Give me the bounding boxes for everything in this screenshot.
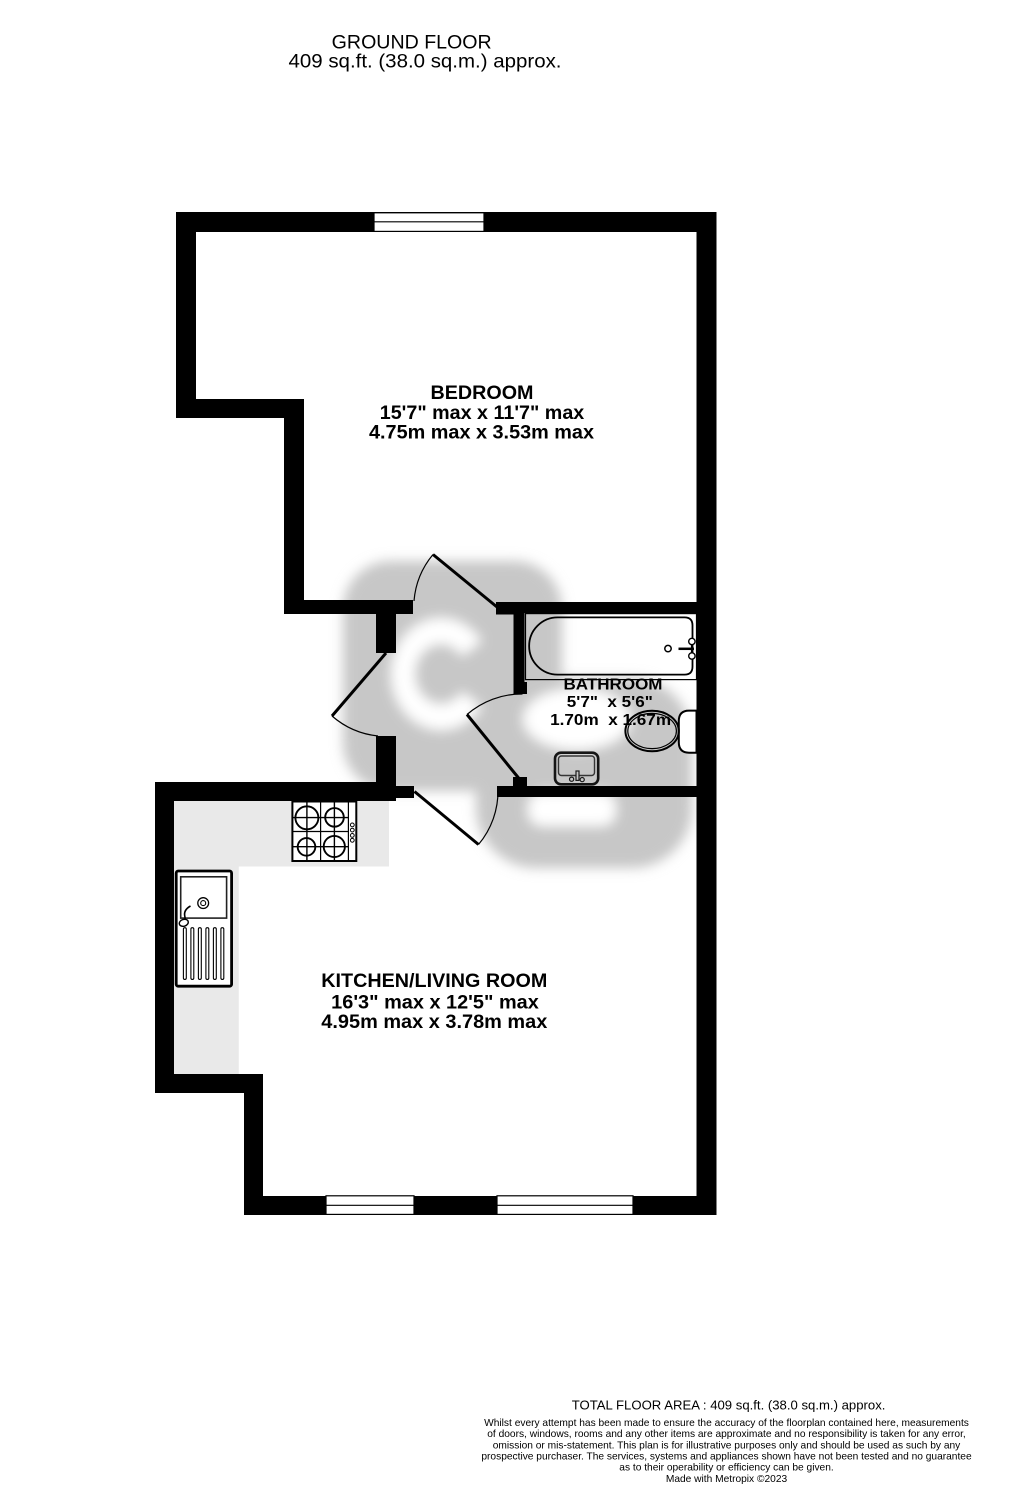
svg-text:Made with Metropix ©2023: Made with Metropix ©2023 [666, 1474, 788, 1485]
svg-text:KITCHEN/LIVING ROOM: KITCHEN/LIVING ROOM [321, 970, 547, 992]
svg-text:TOTAL FLOOR AREA : 409 sq.ft.: TOTAL FLOOR AREA : 409 sq.ft. (38.0 sq.m… [572, 1397, 886, 1412]
svg-text:omission or mis-statement. Thi: omission or mis-statement. This plan is … [493, 1440, 961, 1451]
svg-text:of doors, windows, rooms and a: of doors, windows, rooms and any other i… [487, 1429, 965, 1440]
svg-text:Whilst every attempt has been: Whilst every attempt has been made to en… [484, 1418, 969, 1429]
svg-text:as to their operability or eff: as to their operability or efficiency ca… [619, 1463, 833, 1474]
svg-text:16'3" max x 12'5" max: 16'3" max x 12'5" max [331, 991, 539, 1013]
svg-text:4.95m max x 3.78m max: 4.95m max x 3.78m max [321, 1011, 547, 1033]
svg-text:BEDROOM: BEDROOM [431, 382, 534, 404]
svg-text:409 sq.ft. (38.0 sq.m.) approx: 409 sq.ft. (38.0 sq.m.) approx. [289, 52, 562, 73]
svg-text:GROUND FLOOR: GROUND FLOOR [332, 32, 492, 53]
svg-text:4.75m max x 3.53m max: 4.75m max x 3.53m max [369, 422, 594, 444]
svg-text:prospective purchaser. The ser: prospective purchaser. The services, sys… [481, 1452, 972, 1463]
